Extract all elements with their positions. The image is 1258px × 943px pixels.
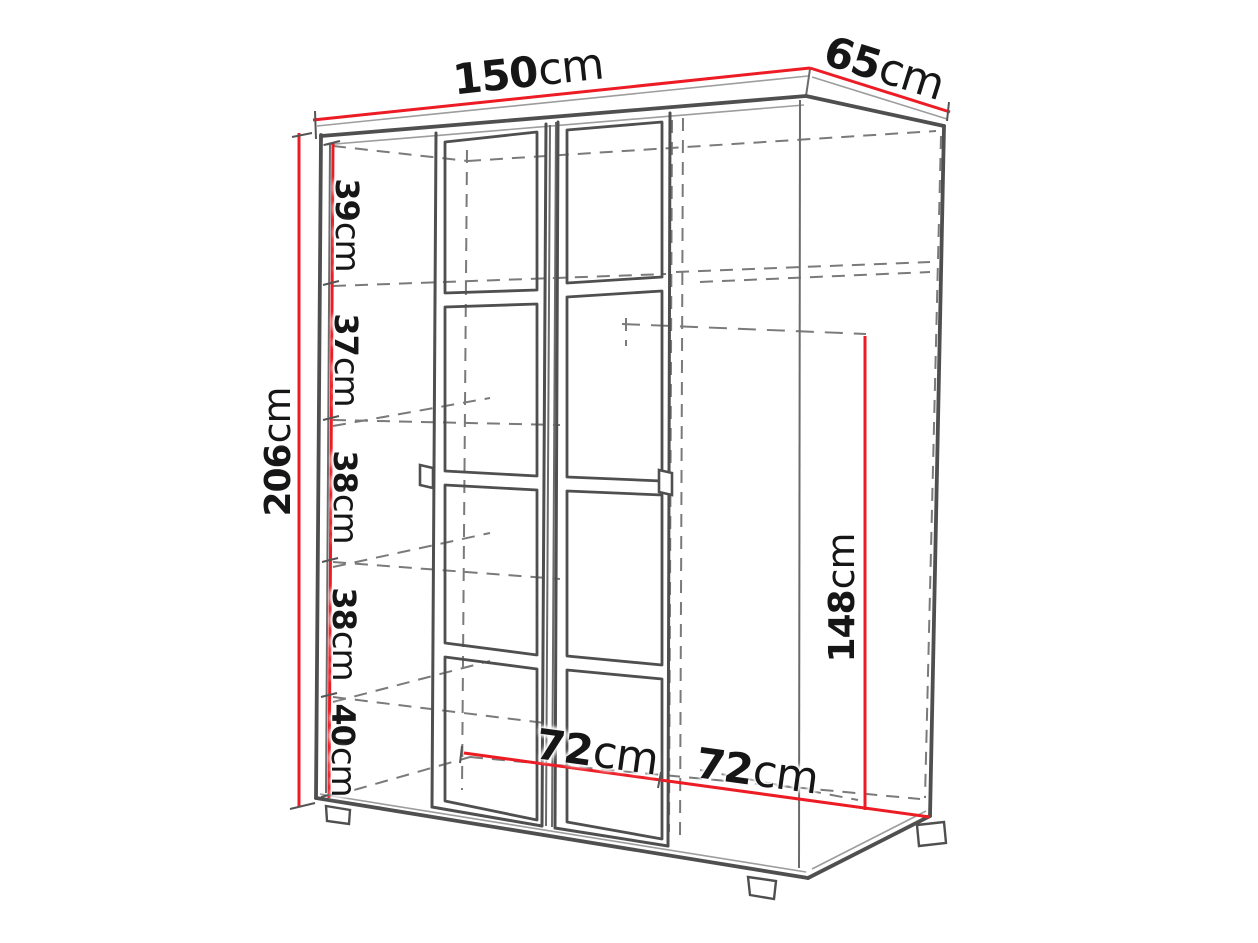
right-door <box>555 113 670 846</box>
foot-right-back <box>917 822 946 846</box>
wardrobe-feet <box>326 806 946 899</box>
bottom-front-edge <box>316 798 808 878</box>
top-front-edge <box>321 96 806 136</box>
dimension-lines <box>299 68 950 817</box>
wardrobe-line-art <box>0 0 1258 943</box>
handle-right <box>659 470 672 495</box>
left-door <box>432 124 546 826</box>
wardrobe-outline <box>316 69 947 878</box>
left-front-edge <box>316 135 321 798</box>
hanging-rail-hidden-line <box>622 324 866 334</box>
dimension-line-width <box>313 68 810 120</box>
foot-left <box>326 806 350 824</box>
dimension-line-depth <box>810 68 950 112</box>
foot-right-front <box>748 877 776 899</box>
right-front-stile <box>799 100 800 868</box>
wardrobe-diagram: 150cm 65cm 206cm 39cm 37cm 38cm 38cm 40c… <box>0 0 1258 943</box>
dimension-line-interior-width <box>464 753 930 817</box>
handle-left <box>420 465 433 488</box>
bottom-side-edge <box>808 816 930 878</box>
